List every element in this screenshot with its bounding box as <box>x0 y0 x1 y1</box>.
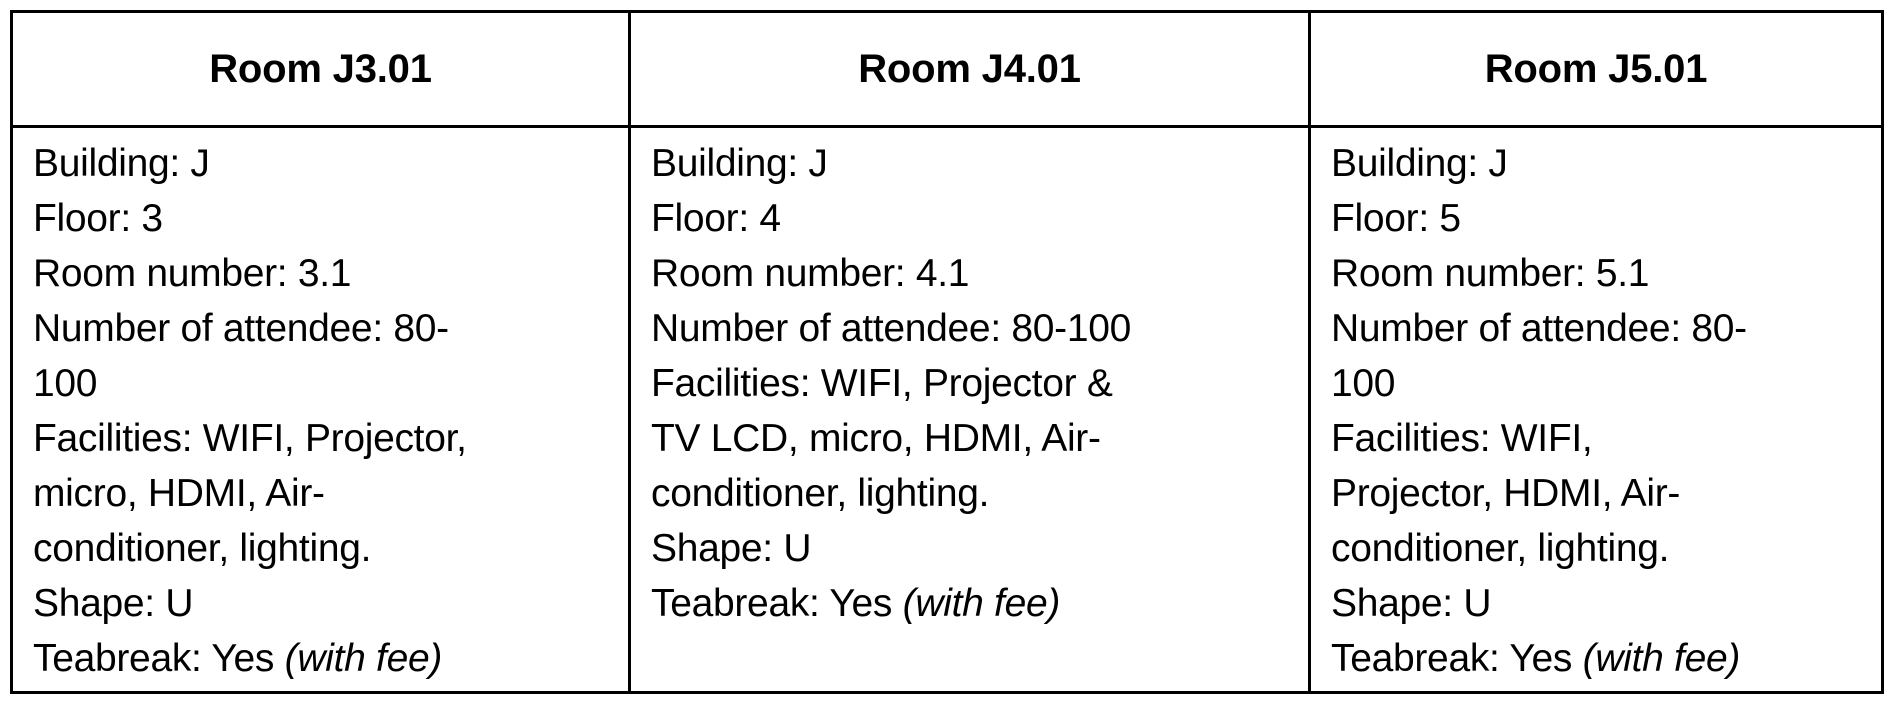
teabreak-line: Teabreak: Yes (with fee) <box>33 631 614 686</box>
room-header-j4-01: Room J4.01 <box>628 13 1308 128</box>
rooms-table: Room J3.01 Room J4.01 Room J5.01 Buildin… <box>10 10 1884 694</box>
teabreak-line: Teabreak: Yes (with fee) <box>1331 631 1867 686</box>
teabreak-fee-note: (with fee) <box>903 582 1060 625</box>
teabreak-line: Teabreak: Yes (with fee) <box>651 576 1294 631</box>
room-title: Room J5.01 <box>1485 47 1708 92</box>
teabreak-text: Teabreak: Yes <box>1331 637 1583 680</box>
room-details-j4-01: Building: J Floor: 4 Room number: 4.1 Nu… <box>628 128 1308 691</box>
teabreak-text: Teabreak: Yes <box>33 637 285 680</box>
room-header-j5-01: Room J5.01 <box>1308 13 1881 128</box>
teabreak-text: Teabreak: Yes <box>651 582 903 625</box>
room-details-j3-01: Building: J Floor: 3 Room number: 3.1 Nu… <box>13 128 628 691</box>
room-title: Room J4.01 <box>858 47 1081 92</box>
room-details-text: Building: J Floor: 5 Room number: 5.1 Nu… <box>1331 136 1867 631</box>
room-details-text: Building: J Floor: 4 Room number: 4.1 Nu… <box>651 136 1294 576</box>
teabreak-fee-note: (with fee) <box>1583 637 1740 680</box>
room-details-text: Building: J Floor: 3 Room number: 3.1 Nu… <box>33 136 614 631</box>
room-header-j3-01: Room J3.01 <box>13 13 628 128</box>
room-title: Room J3.01 <box>209 47 432 92</box>
room-details-j5-01: Building: J Floor: 5 Room number: 5.1 Nu… <box>1308 128 1881 691</box>
teabreak-fee-note: (with fee) <box>285 637 442 680</box>
